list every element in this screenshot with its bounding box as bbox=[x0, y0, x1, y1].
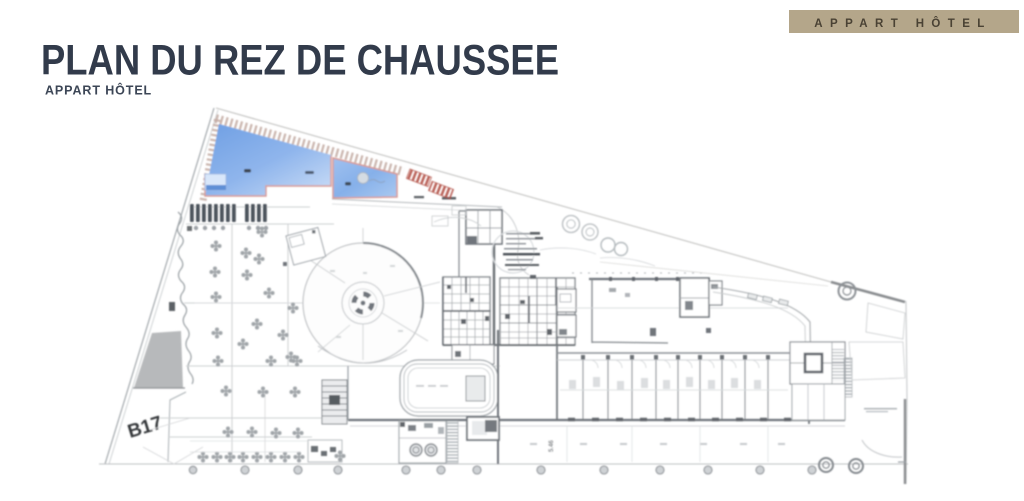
svg-text:APPART HÔTEL: APPART HÔTEL bbox=[45, 83, 152, 98]
svg-text:PLAN DU REZ DE CHAUSSEE: PLAN DU REZ DE CHAUSSEE bbox=[41, 37, 559, 85]
svg-text:APPART HÔTEL: APPART HÔTEL bbox=[814, 17, 991, 30]
svg-text:5.46: 5.46 bbox=[549, 440, 555, 452]
